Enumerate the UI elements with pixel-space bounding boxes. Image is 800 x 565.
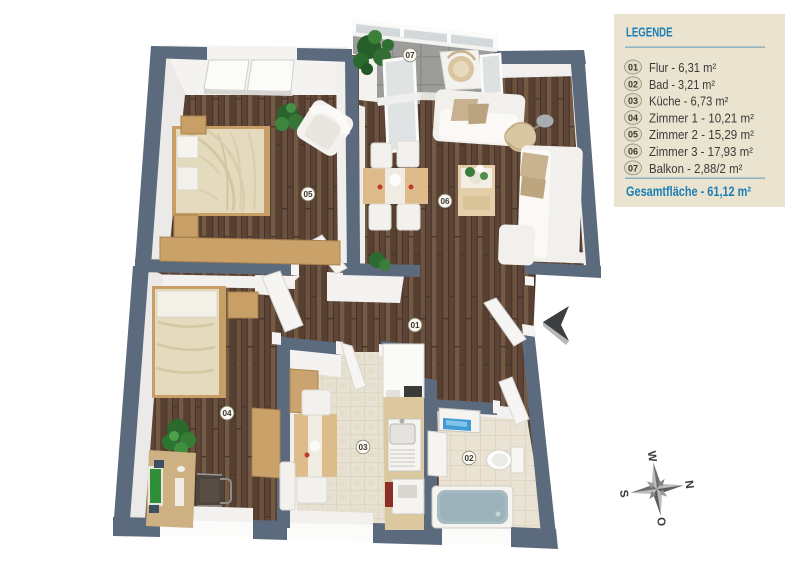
svg-text:05: 05 [628,130,638,140]
svg-text:LEGENDE: LEGENDE [626,25,673,40]
svg-text:Balkon - 2,88/2 m²: Balkon - 2,88/2 m² [649,161,743,176]
svg-text:01: 01 [628,63,638,73]
svg-text:04: 04 [222,409,232,418]
svg-text:Bad - 3,21 m²: Bad - 3,21 m² [649,77,716,92]
svg-text:Gesamtfläche - 61,12 m²: Gesamtfläche - 61,12 m² [626,184,751,199]
svg-text:Flur - 6,31 m²: Flur - 6,31 m² [649,60,717,75]
svg-text:Zimmer 2 - 15,29 m²: Zimmer 2 - 15,29 m² [649,127,755,142]
svg-text:03: 03 [358,443,368,452]
svg-text:Zimmer 3 - 17,93 m²: Zimmer 3 - 17,93 m² [649,144,754,159]
svg-text:W: W [645,450,658,463]
svg-text:07: 07 [628,163,638,173]
svg-text:Zimmer 1 - 10,21 m²: Zimmer 1 - 10,21 m² [649,110,755,125]
svg-text:01: 01 [410,321,420,330]
svg-text:05: 05 [303,190,313,199]
svg-text:06: 06 [628,147,638,157]
svg-text:02: 02 [464,454,474,463]
svg-text:O: O [654,517,667,528]
svg-text:N: N [682,480,695,490]
svg-text:06: 06 [440,197,450,206]
svg-text:04: 04 [628,113,638,123]
svg-text:02: 02 [628,79,638,89]
svg-text:Küche - 6,73 m²: Küche - 6,73 m² [649,94,729,109]
svg-text:07: 07 [405,51,415,60]
svg-text:03: 03 [628,96,638,106]
